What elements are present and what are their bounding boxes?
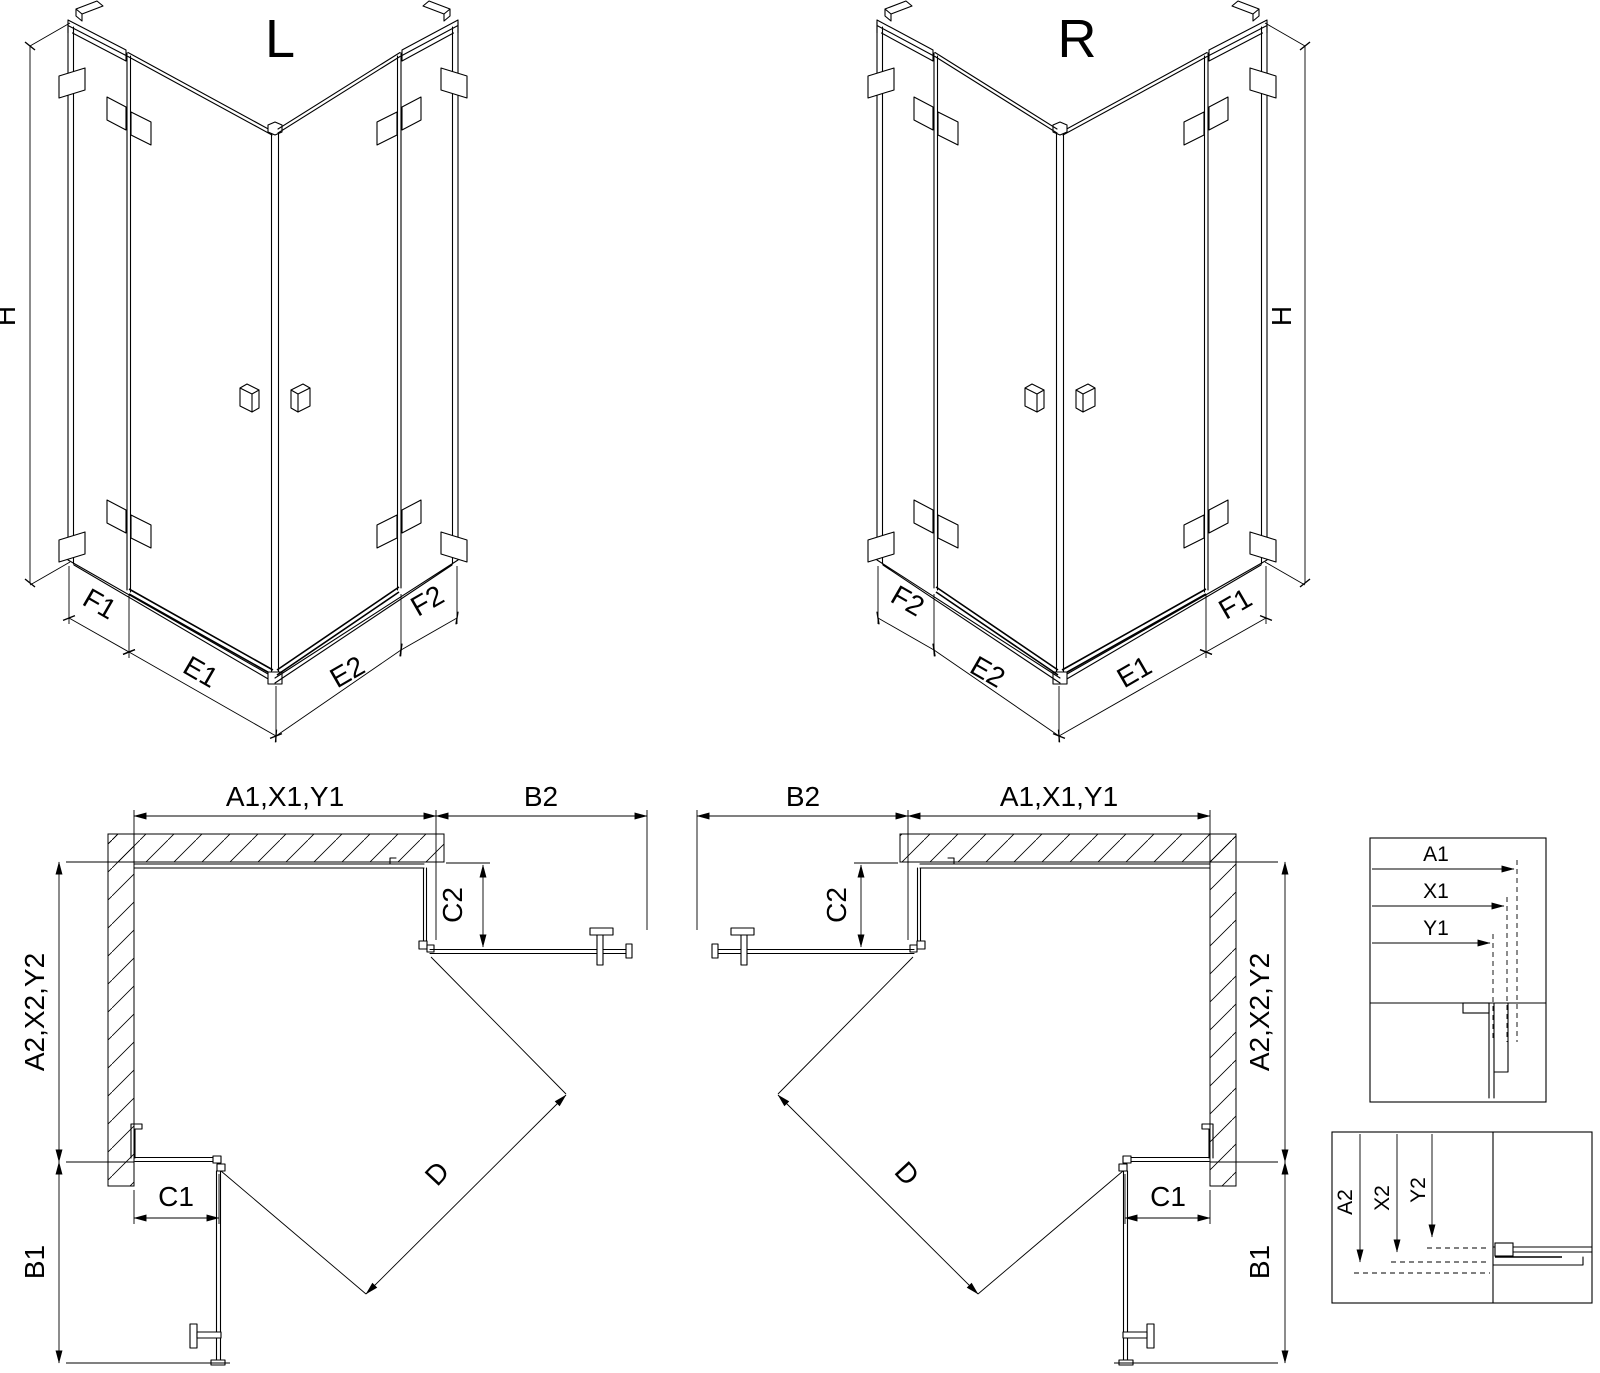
plan-right-side-wall (1210, 834, 1236, 1186)
plan-right-b2-label: B2 (786, 781, 820, 812)
iso-view-left: L H F1 E1 E2 F2 (0, 1, 467, 742)
detail-box-depths: A2 X2 Y2 (1332, 1132, 1592, 1303)
iso-right-e1-label: E1 (1112, 650, 1157, 694)
plan-right-width-label: A1,X1,Y1 (1000, 781, 1118, 812)
plan-left-lineart (59, 810, 647, 1365)
iso-view-right: R H F2 E2 E1 F1 (868, 1, 1305, 742)
plan-left-c1-label: C1 (158, 1181, 194, 1212)
detail-box-widths: A1 X1 Y1 (1370, 838, 1546, 1102)
iso-left-e2-label: E2 (325, 650, 370, 694)
plan-view-left: A1,X1,Y1 B2 C2 A2,X2,Y2 B1 C1 D (19, 781, 647, 1365)
detail-a2-label: A2 (1334, 1189, 1357, 1215)
plan-left-side-wall (108, 834, 134, 1186)
iso-right-f2-label: F2 (886, 579, 930, 622)
plan-right-d-label: D (889, 1156, 925, 1192)
plan-left-b1-label: B1 (19, 1245, 50, 1279)
plan-left-c2-label: C2 (437, 887, 468, 923)
iso-left-title: L (265, 9, 295, 69)
detail-a1-label: A1 (1423, 843, 1449, 866)
plan-left-depth-label: A2,X2,Y2 (19, 953, 50, 1071)
shower-enclosure-diagram: L H F1 E1 E2 F2 R H F2 E2 E1 F1 A1,X1,Y1… (0, 0, 1600, 1373)
detail-y2-label: Y2 (1407, 1177, 1430, 1203)
plan-left-b2-label: B2 (524, 781, 558, 812)
technical-drawing-page: L H F1 E1 E2 F2 R H F2 E2 E1 F1 A1,X1,Y1… (0, 0, 1600, 1373)
iso-left-height-label: H (0, 306, 21, 326)
plan-right-lineart (697, 810, 1285, 1365)
iso-left-lineart (30, 1, 467, 742)
plan-left-width-label: A1,X1,Y1 (226, 781, 344, 812)
plan-view-right: B2 A1,X1,Y1 C2 A2,X2,Y2 B1 C1 D (697, 781, 1285, 1365)
iso-left-f2-label: F2 (405, 579, 449, 622)
iso-left-e1-label: E1 (178, 650, 223, 694)
detail-widths-frame (1370, 838, 1546, 1102)
plan-left-d-label: D (419, 1156, 455, 1192)
iso-right-e2-label: E2 (965, 650, 1010, 694)
detail-y1-label: Y1 (1423, 917, 1449, 940)
detail-depths-frame (1332, 1132, 1592, 1303)
plan-right-c1-label: C1 (1150, 1181, 1186, 1212)
iso-right-title: R (1058, 9, 1097, 69)
plan-right-depth-label: A2,X2,Y2 (1244, 953, 1275, 1071)
iso-right-height-label: H (1266, 306, 1297, 326)
plan-right-c2-label: C2 (821, 887, 852, 923)
detail-x1-label: X1 (1423, 880, 1449, 903)
iso-right-lineart (868, 1, 1305, 742)
plan-right-b1-label: B1 (1244, 1245, 1275, 1279)
detail-x2-label: X2 (1371, 1185, 1394, 1211)
